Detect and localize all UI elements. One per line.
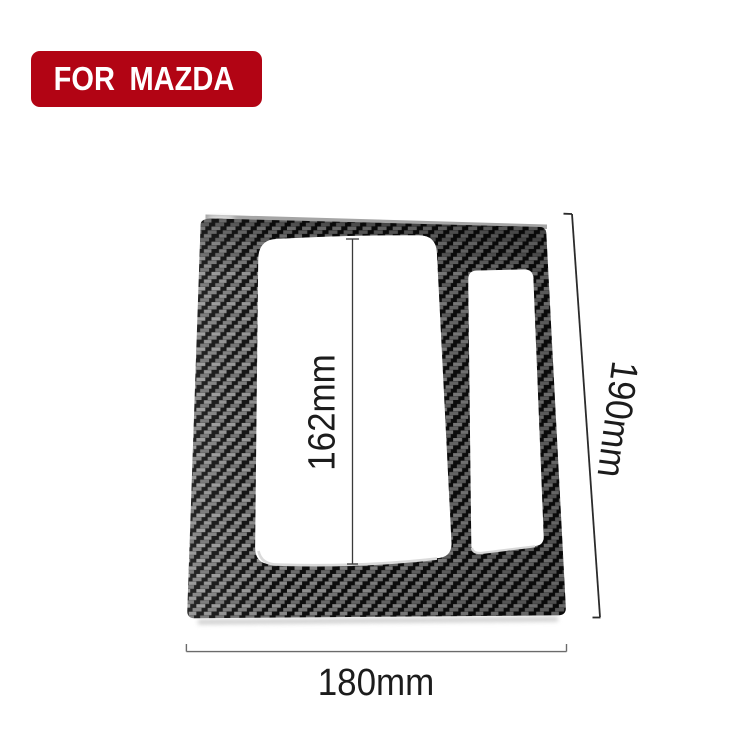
svg-text:180mm: 180mm <box>318 661 435 704</box>
svg-text:FOR MAZDA: FOR MAZDA <box>54 60 235 97</box>
svg-text:162mm: 162mm <box>300 354 343 471</box>
